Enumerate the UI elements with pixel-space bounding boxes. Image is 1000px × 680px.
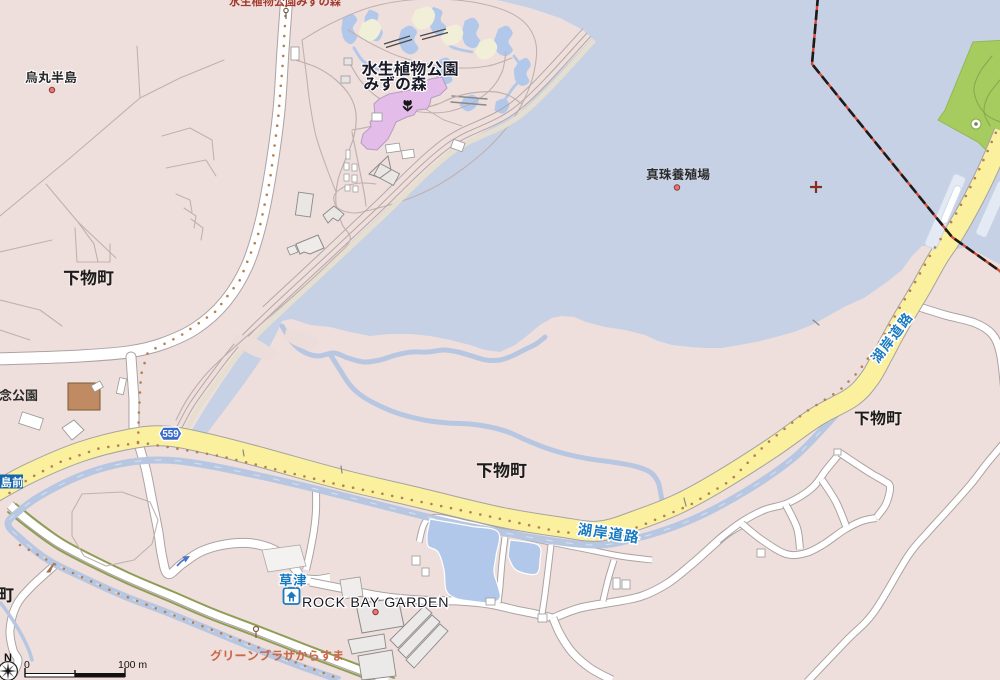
- svg-text:100 m: 100 m: [118, 659, 147, 671]
- svg-text:N: N: [4, 652, 12, 664]
- svg-text:0: 0: [24, 659, 30, 671]
- svg-text:ROCK BAY GARDEN: ROCK BAY GARDEN: [302, 595, 449, 611]
- svg-text:559: 559: [162, 429, 179, 440]
